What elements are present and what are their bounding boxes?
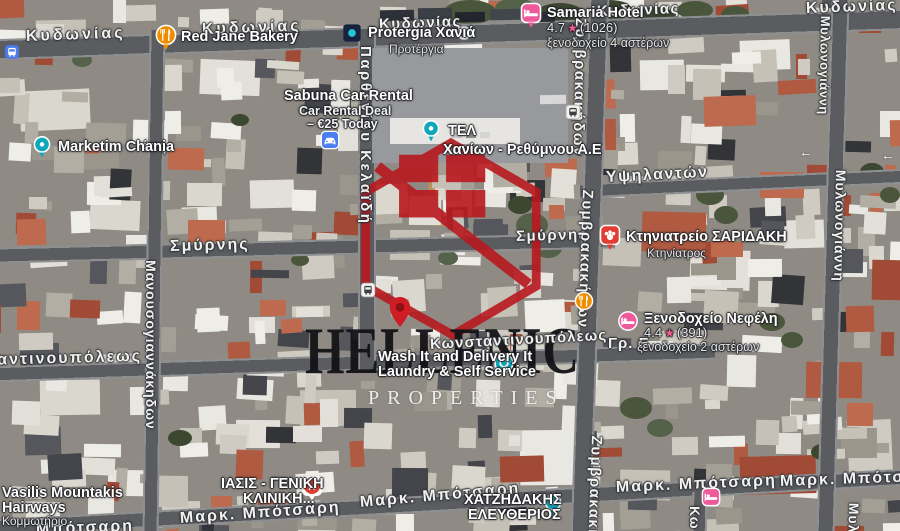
pin-layer xyxy=(0,0,900,531)
map-canvas[interactable]: HELLENIC PROPERTIES ΚυδωνίαςΚυδωνίαςΚυδω… xyxy=(0,0,900,531)
property-location-pin[interactable] xyxy=(388,296,412,328)
